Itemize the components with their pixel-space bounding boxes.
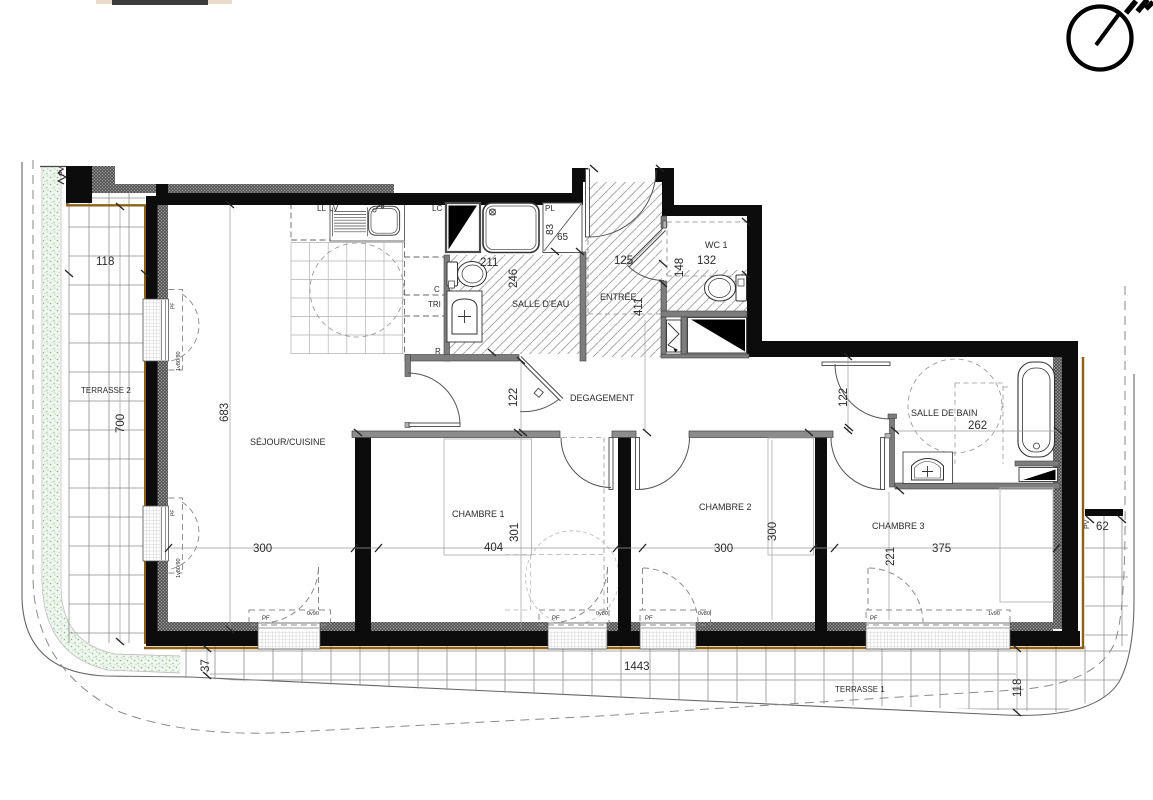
svg-text:PF: PF [645,616,653,622]
svg-text:211: 211 [480,257,498,269]
svg-text:PF: PF [870,616,878,622]
svg-text:683: 683 [219,403,231,422]
svg-text:PV: PV [1084,519,1091,529]
svg-text:118: 118 [1012,679,1024,697]
svg-text:122: 122 [508,388,520,407]
svg-text:221: 221 [885,547,897,566]
svg-text:37: 37 [200,659,212,672]
svg-text:1v90: 1v90 [988,611,1000,617]
svg-text:300: 300 [714,543,733,555]
svg-text:TERRASSE 2: TERRASSE 2 [81,386,131,395]
svg-text:CHAMBRE 3: CHAMBRE 3 [872,521,925,531]
svg-text:1v80/90: 1v80/90 [176,351,182,371]
svg-text:LC: LC [432,204,442,213]
svg-text:118: 118 [96,256,114,268]
svg-text:PF: PF [171,303,177,309]
svg-text:0v80: 0v80 [596,611,608,617]
svg-text:SÉJOUR/CUISINE: SÉJOUR/CUISINE [250,437,326,447]
svg-text:LV: LV [329,204,339,213]
svg-text:148: 148 [674,258,686,277]
svg-text:0v80: 0v80 [698,611,710,617]
svg-text:62: 62 [1096,521,1109,533]
svg-text:PF: PF [171,510,177,516]
svg-text:R: R [435,347,441,356]
svg-text:ENTRÉE: ENTRÉE [600,292,637,302]
svg-text:DEGAGEMENT: DEGAGEMENT [570,393,635,403]
svg-text:WC 1: WC 1 [705,240,728,250]
svg-text:1443: 1443 [624,661,650,673]
svg-text:404: 404 [484,542,504,554]
svg-text:TRI: TRI [428,300,441,309]
svg-text:SALLE D'EAU: SALLE D'EAU [512,299,569,309]
svg-text:CHAMBRE 1: CHAMBRE 1 [452,509,505,519]
svg-text:411: 411 [633,298,645,316]
svg-text:C: C [434,285,440,294]
svg-text:PF: PF [262,616,270,622]
svg-text:375: 375 [932,543,951,555]
svg-text:301: 301 [509,523,521,542]
svg-text:65: 65 [557,232,569,243]
svg-text:PL: PL [545,204,555,213]
svg-text:1v80/90: 1v80/90 [176,558,182,578]
svg-text:300: 300 [253,543,272,555]
svg-text:132: 132 [697,255,716,267]
svg-text:0v90: 0v90 [307,611,319,617]
svg-text:122: 122 [838,388,850,407]
svg-text:125: 125 [614,255,633,267]
svg-text:CHAMBRE 2: CHAMBRE 2 [699,502,752,512]
svg-text:700: 700 [115,414,127,433]
svg-text:PF: PF [552,616,560,622]
svg-text:246: 246 [508,269,520,288]
svg-text:TERRASSE 1: TERRASSE 1 [835,685,885,694]
svg-text:262: 262 [968,420,987,432]
svg-text:83: 83 [545,223,556,235]
svg-text:SALLE DE BAIN: SALLE DE BAIN [911,408,978,418]
svg-text:300: 300 [767,522,779,541]
svg-text:LL: LL [317,204,326,213]
